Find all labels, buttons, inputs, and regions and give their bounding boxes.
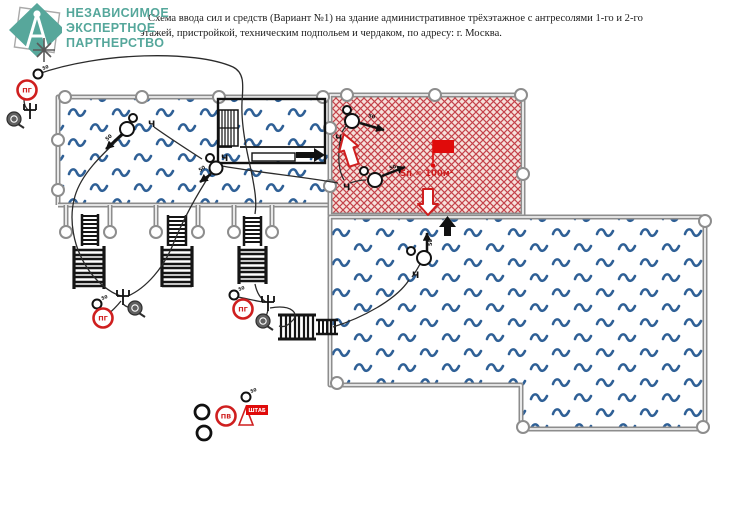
marker-50-label: 50 [250, 387, 258, 395]
right-building [332, 219, 703, 427]
left-building-floor [60, 99, 328, 203]
hose-reel-icon [256, 314, 273, 330]
branch-label: Ч [412, 271, 419, 281]
scheme-title: Схема ввода сил и средств (Вариант №1) н… [140, 12, 650, 41]
nozzle-50-label: 50 [428, 239, 434, 246]
hose-branch-icon [262, 295, 274, 311]
logo-text: НЕЗАВИСИМОЕ ЭКСПЕРТНОЕ ПАРТНЕРСТВО [66, 6, 169, 62]
marker-50-label: 50 [101, 294, 109, 302]
ladder-2 [162, 215, 192, 287]
floor-plan: 50 50 50 50 50 [0, 0, 750, 528]
logo-line-2: ЭКСПЕРТНОЕ [66, 21, 169, 36]
legend-circle [195, 405, 209, 419]
marker-50-label: 50 [238, 285, 246, 293]
scheme-title-line-1: Схема ввода сил и средств (Вариант №1) н… [140, 12, 650, 27]
company-logo: НЕЗАВИСИМОЕ ЭКСПЕРТНОЕ ПАРТНЕРСТВО [6, 2, 169, 62]
compass-logo-icon [6, 2, 62, 62]
hydrant-label: ПГ [22, 87, 32, 95]
scheme-title-line-2: этажей, пристройкой, техническим подполь… [140, 27, 650, 42]
reservoir-symbol: ПВ [217, 407, 236, 426]
hydrant-symbol: ПГ [234, 300, 253, 319]
reservoir-label: ПВ [221, 413, 231, 421]
fire-area-label: Sп = 100м² [400, 169, 454, 179]
room-table [252, 153, 295, 161]
left-building [60, 99, 328, 203]
hydrant-symbol: ПГ [18, 81, 37, 100]
hydrant-symbol: ПГ [94, 309, 113, 328]
hose-reel-icon [7, 112, 24, 128]
branch-label: Ч [148, 120, 155, 130]
room-staircase [219, 110, 238, 146]
hydrant-label: ПГ [238, 306, 248, 314]
legend-circle [197, 426, 211, 440]
logo-line-1: НЕЗАВИСИМОЕ [66, 6, 169, 21]
branch-label: Ч [343, 183, 350, 193]
logo-line-3: ПАРТНЕРСТВО [66, 36, 169, 51]
fire-scheme-page: 50 50 50 50 50 [0, 0, 750, 528]
hose-branch-icon [117, 289, 129, 305]
legend-symbols: ПВ ШТАБ [195, 405, 268, 440]
hydrant-label: ПГ [98, 315, 108, 323]
ladder-3 [239, 216, 266, 284]
hose-branch-icon [24, 103, 36, 119]
hose-reel-icon [128, 301, 145, 317]
headquarters-symbol: ШТАБ [239, 405, 268, 425]
branch-label: Ч [221, 154, 228, 164]
headquarters-label: ШТАБ [248, 408, 265, 414]
right-building-floor [332, 219, 703, 427]
